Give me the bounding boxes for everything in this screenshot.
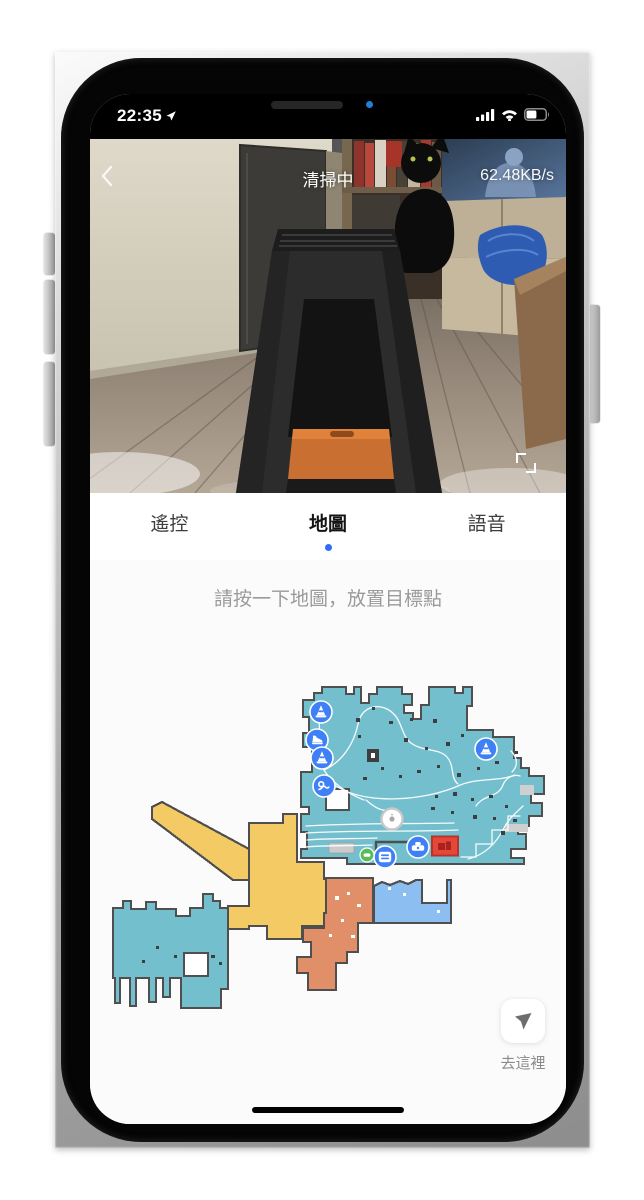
tab-bar: 遙控 地圖 語音 (90, 493, 566, 561)
tab-remote[interactable]: 遙控 (90, 493, 249, 560)
phone-screen: 22:35 (90, 94, 566, 1124)
wifi-icon (501, 109, 518, 121)
map-panel: 請按一下地圖，放置目標點 (90, 560, 566, 1124)
navigate-arrow-icon (511, 1009, 535, 1033)
location-arrow-icon (165, 110, 177, 122)
phone-bezel: 22:35 (61, 58, 584, 1142)
page-background: 22:35 (0, 0, 644, 1200)
floor-map[interactable] (90, 646, 566, 1046)
camera-indicator-dot (366, 101, 373, 108)
battery-icon (524, 108, 551, 121)
map-instruction: 請按一下地圖，放置目標點 (90, 584, 566, 611)
room-blue[interactable] (374, 880, 451, 923)
home-indicator[interactable] (252, 1107, 404, 1113)
map-hole (184, 953, 208, 976)
map-marker-dock-green[interactable] (360, 848, 374, 862)
active-tab-dot (325, 544, 332, 551)
map-marker-cone[interactable] (311, 747, 333, 769)
power-button (589, 305, 600, 423)
camera-live-view[interactable]: 7 (90, 139, 566, 493)
volume-down-button (44, 362, 55, 446)
map-marker-cone[interactable] (475, 738, 497, 760)
tab-voice[interactable]: 語音 (407, 493, 566, 560)
stream-bitrate: 62.48KB/s (480, 167, 554, 185)
volume-up-button (44, 280, 55, 354)
cellular-signal-icon (476, 109, 495, 121)
tab-map[interactable]: 地圖 (249, 493, 408, 560)
status-time: 22:35 (117, 106, 177, 126)
map-marker-cone[interactable] (310, 701, 332, 723)
camera-scene: 7 (90, 139, 566, 493)
map-marker-stripes[interactable] (374, 846, 396, 868)
room-bottom-left[interactable] (113, 894, 228, 1008)
speaker-notch-pill (271, 101, 343, 109)
go-here-label: 去這裡 (489, 1052, 557, 1073)
phone-frame: 22:35 (55, 52, 590, 1148)
go-here-button[interactable] (501, 999, 545, 1043)
map-marker-dock[interactable] (407, 836, 429, 858)
status-bar: 22:35 (90, 94, 566, 139)
map-marker-robot[interactable] (382, 809, 403, 830)
mute-switch (44, 233, 55, 275)
room-corridor-wedge[interactable] (152, 802, 249, 880)
charging-pad (329, 843, 354, 853)
clock-text: 22:35 (117, 106, 162, 126)
map-marker-no-go-zone[interactable] (432, 837, 458, 856)
fullscreen-button[interactable] (516, 453, 536, 473)
map-marker-wire[interactable] (313, 775, 335, 797)
unexplored-patch (520, 785, 534, 795)
